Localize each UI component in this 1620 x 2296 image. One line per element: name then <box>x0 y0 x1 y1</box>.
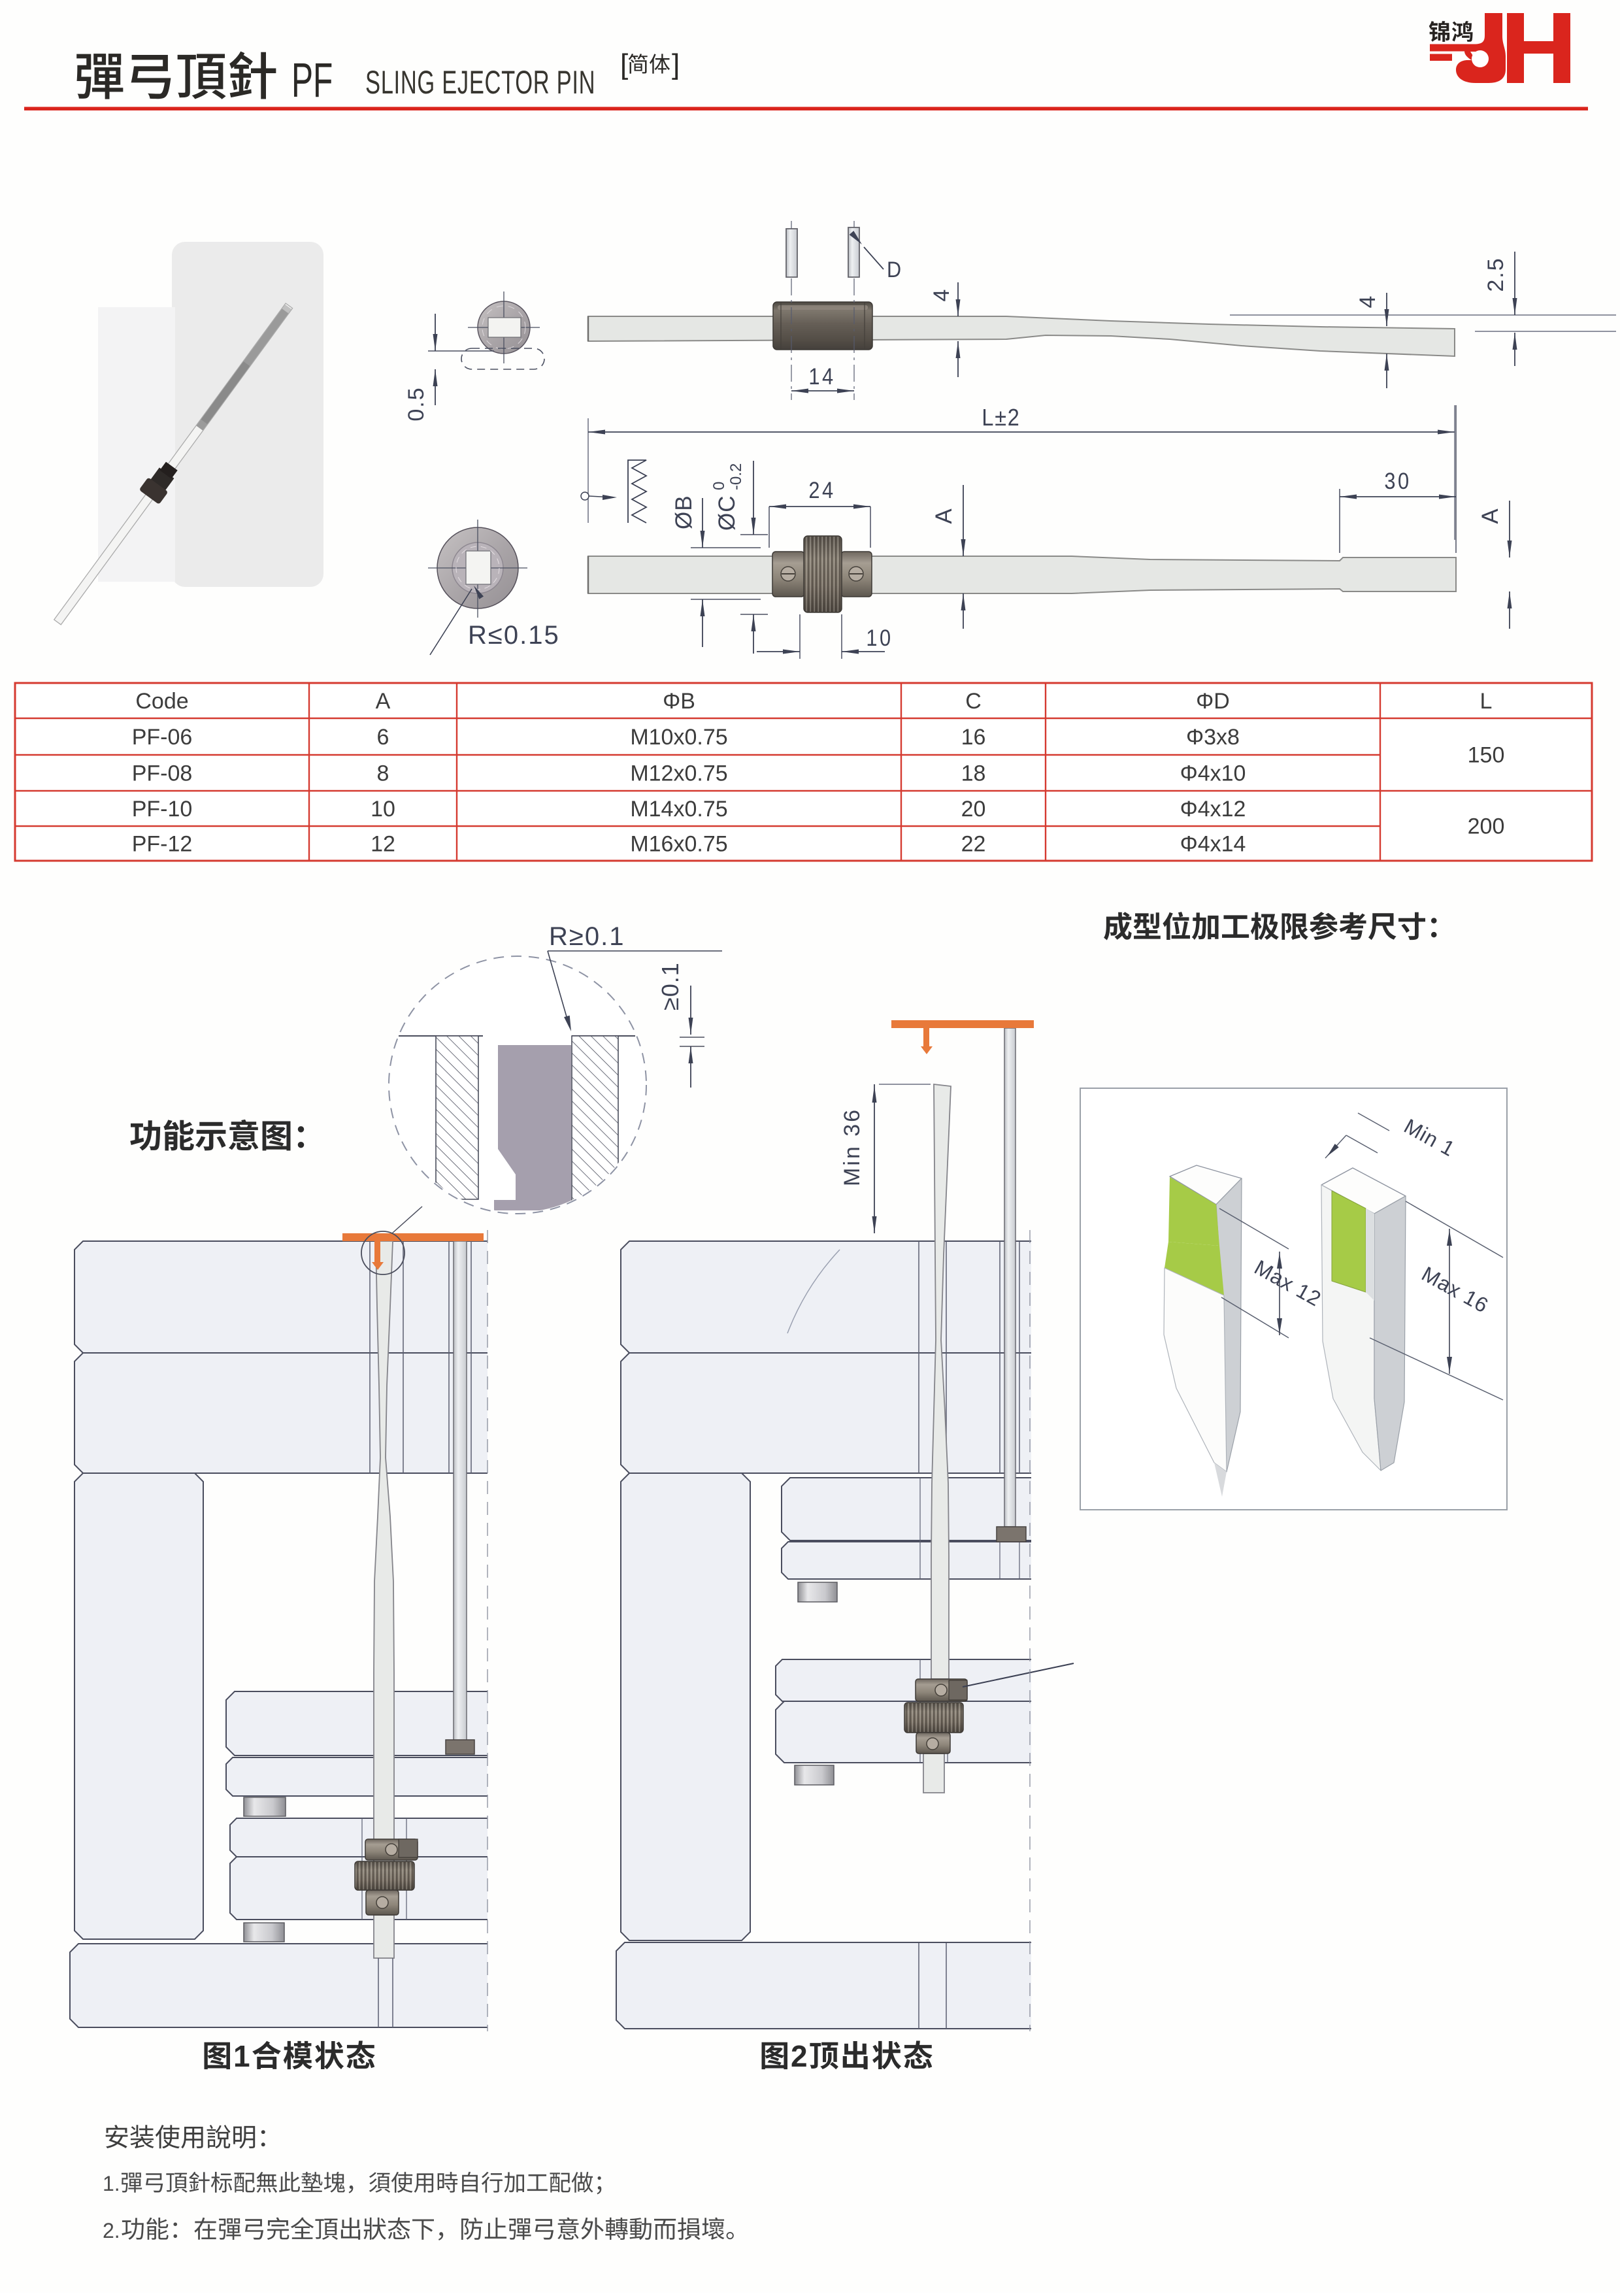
svg-text:Code: Code <box>135 689 188 714</box>
svg-text:M12x0.75: M12x0.75 <box>630 761 727 786</box>
svg-text:PF: PF <box>291 54 333 107</box>
svg-text:22: 22 <box>961 832 986 857</box>
svg-text:1: 1 <box>233 2039 252 2073</box>
svg-text:ØC: ØC <box>714 495 740 531</box>
svg-text:2.: 2. <box>103 2219 120 2242</box>
svg-text:PF-08: PF-08 <box>132 761 193 786</box>
svg-text:R≥0.1: R≥0.1 <box>549 922 625 951</box>
svg-text:PF-10: PF-10 <box>132 797 193 822</box>
svg-text:14: 14 <box>808 363 835 389</box>
svg-text:A: A <box>931 508 957 524</box>
svg-text:L: L <box>1480 689 1493 714</box>
svg-text:18: 18 <box>961 761 986 786</box>
svg-text:10: 10 <box>866 625 893 650</box>
svg-text:4: 4 <box>929 290 954 302</box>
svg-text:10: 10 <box>371 797 395 822</box>
svg-text:D: D <box>887 258 901 282</box>
svg-text:M16x0.75: M16x0.75 <box>630 832 727 857</box>
svg-text:ΦD: ΦD <box>1196 689 1230 714</box>
svg-text:12: 12 <box>371 832 395 857</box>
svg-text:ΦB: ΦB <box>663 689 695 714</box>
svg-text:0.5: 0.5 <box>404 386 429 421</box>
svg-text:1.: 1. <box>103 2172 120 2195</box>
svg-text:ØB: ØB <box>671 495 697 529</box>
svg-text:A: A <box>1478 508 1503 524</box>
svg-text:A: A <box>376 689 391 714</box>
svg-text:16: 16 <box>961 725 986 750</box>
svg-text:SLING EJECTOR PIN: SLING EJECTOR PIN <box>365 65 595 101</box>
svg-text:M14x0.75: M14x0.75 <box>630 797 727 822</box>
svg-text:24: 24 <box>808 477 835 503</box>
svg-text:Min 36: Min 36 <box>840 1108 865 1186</box>
svg-text:Φ4x10: Φ4x10 <box>1180 761 1246 786</box>
svg-text:[: [ <box>620 48 628 80</box>
svg-text:2.5: 2.5 <box>1483 257 1508 291</box>
svg-text:PF-06: PF-06 <box>132 725 193 750</box>
svg-text:4: 4 <box>1355 296 1380 308</box>
svg-text:Φ4x12: Φ4x12 <box>1180 797 1246 822</box>
svg-text:8: 8 <box>377 761 389 786</box>
svg-text:]: ] <box>672 48 680 80</box>
svg-text:Φ4x14: Φ4x14 <box>1180 832 1246 857</box>
svg-text:150: 150 <box>1468 743 1505 768</box>
svg-text:-0.2: -0.2 <box>727 463 745 490</box>
svg-text:20: 20 <box>961 797 986 822</box>
svg-text:200: 200 <box>1468 814 1505 839</box>
svg-text:M10x0.75: M10x0.75 <box>630 725 727 750</box>
svg-text:PF-12: PF-12 <box>132 832 193 857</box>
svg-text:2: 2 <box>791 2039 809 2073</box>
svg-text:Φ3x8: Φ3x8 <box>1186 725 1240 750</box>
svg-text:0: 0 <box>710 482 728 490</box>
svg-text:≥0.1: ≥0.1 <box>657 962 684 1010</box>
svg-text:R≤0.15: R≤0.15 <box>468 621 560 650</box>
svg-text:6: 6 <box>377 725 389 750</box>
svg-text:C: C <box>965 689 982 714</box>
svg-text:L±2: L±2 <box>982 405 1020 431</box>
svg-text:30: 30 <box>1384 468 1411 493</box>
